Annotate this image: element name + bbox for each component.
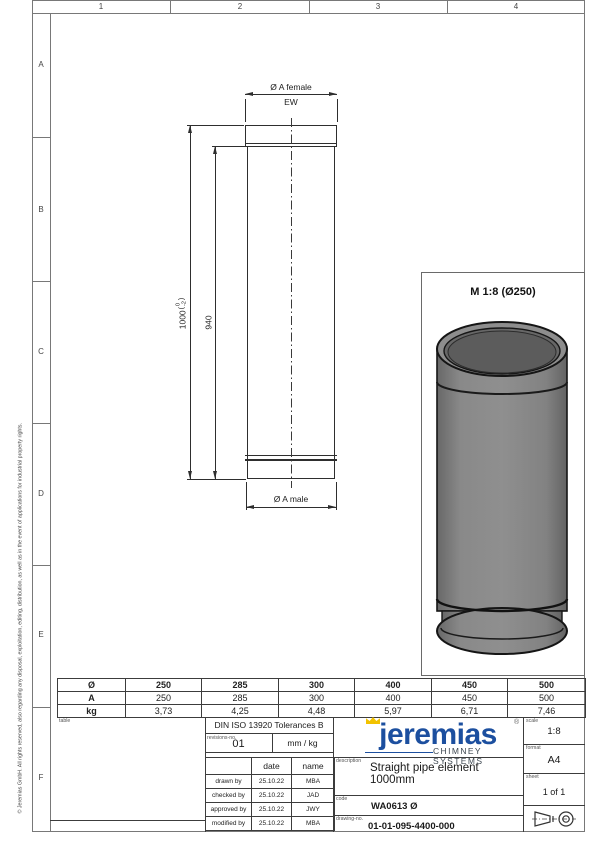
code-value: WA0613 Ø: [371, 801, 521, 812]
sheet-value: 1 of 1: [523, 787, 585, 797]
size-cell: 250: [126, 692, 202, 705]
role-cell: modified by: [206, 817, 252, 831]
dim-length-line: [190, 125, 191, 479]
size-cell: 7,46: [508, 705, 586, 718]
dim-arrow-up: [188, 125, 192, 133]
size-cell: 6,71: [432, 705, 508, 718]
sheet-label: sheet: [526, 775, 539, 780]
description-label: description: [336, 759, 361, 764]
row-divider: [32, 137, 50, 138]
size-table: Ø 250 285 300 400 450 500 A 250 285 300 …: [57, 678, 586, 718]
tol-paren-open: (: [179, 307, 186, 309]
date-header: date: [252, 758, 292, 775]
table-cell-label: table: [59, 719, 70, 724]
size-table-row-a: A 250 285 300 400 450 500: [58, 692, 586, 705]
zone-row-d: D: [32, 489, 50, 498]
code-label: code: [336, 797, 347, 802]
size-table-row-diameter: Ø 250 285 300 400 450 500: [58, 679, 586, 692]
pipe-body-right: [334, 147, 335, 478]
name-cell: MBA: [292, 817, 335, 831]
title-block-divider: [333, 795, 523, 796]
copyright-note: © Jeremias GmbH. All rights reserved, al…: [18, 454, 27, 814]
frame-top: [32, 13, 585, 14]
role-cell: drawn by: [206, 775, 252, 789]
zone-col-2: 2: [230, 2, 250, 11]
dim-female-label: Ø A female: [225, 82, 357, 92]
zone-row-a: A: [32, 60, 50, 69]
dim-arrow-right: [328, 505, 336, 509]
logo-cell: jeremias ® CHIMNEY SYSTEMS: [333, 717, 523, 757]
zone-row-e: E: [32, 630, 50, 639]
dim-arrow-right: [329, 92, 337, 96]
size-cell: 300: [279, 679, 355, 692]
dim-arrow-left: [246, 505, 254, 509]
dim-arrow-down: [213, 471, 217, 479]
col-divider: [309, 0, 310, 13]
scale-label: scale: [526, 719, 538, 724]
signature-row-modified: modified by 25.10.22 MBA: [206, 817, 335, 831]
size-cell: 250: [126, 679, 202, 692]
signature-row-drawn: drawn by 25.10.22 MBA: [206, 775, 335, 789]
dim-length-tolerance: 0 -2: [176, 301, 188, 306]
dim-male-line: [246, 507, 336, 508]
size-cell: 500: [508, 679, 586, 692]
dim-ext-line: [187, 125, 244, 126]
size-label: Ø: [58, 679, 126, 692]
pipe-centerline: [291, 118, 292, 488]
dim-arrow-up: [213, 146, 217, 154]
name-cell: JAD: [292, 789, 335, 803]
date-cell: 25.10.22: [252, 817, 292, 831]
col-divider: [447, 0, 448, 13]
title-block-divider: [523, 805, 585, 806]
dim-length-value: 1000: [177, 310, 187, 329]
iso-view-box: M 1:8 (Ø250): [421, 272, 585, 676]
tolerance-note: DIN ISO 13920 Tolerances B: [205, 717, 333, 734]
first-angle-projection-icon: [531, 808, 577, 830]
dim-female-line: [245, 94, 337, 95]
format-value: A4: [523, 754, 585, 766]
dim-arrow-down: [188, 471, 192, 479]
logo-underline: [365, 752, 433, 754]
title-block: DIN ISO 13920 Tolerances B revisions-no.…: [205, 717, 585, 832]
size-cell: 500: [508, 692, 586, 705]
drawing-sheet: 1 2 3 4 A B C D E F © Jeremias GmbH. All…: [0, 0, 600, 848]
size-cell: 300: [279, 692, 355, 705]
row-divider: [32, 281, 50, 282]
zone-row-c: C: [32, 347, 50, 356]
size-label: A: [58, 692, 126, 705]
signature-header-row: date name: [206, 758, 335, 775]
size-cell: 3,73: [126, 705, 202, 718]
signature-row-checked: checked by 25.10.22 JAD: [206, 789, 335, 803]
scale-value: 1:8: [523, 726, 585, 737]
row-divider: [32, 707, 50, 708]
pipe-3d-render: [422, 273, 584, 675]
drawing-no-value: 01-01-095-4400-000: [368, 821, 528, 832]
signature-empty-header: [206, 758, 252, 775]
revision-number: 01: [205, 734, 272, 753]
drawing-no-label: drawing-no.: [336, 817, 363, 822]
dim-ext-line: [212, 146, 246, 147]
units-cell: mm / kg: [272, 734, 333, 753]
dim-ext-line: [187, 479, 246, 480]
iso-view-label: M 1:8 (Ø250): [422, 286, 584, 298]
date-cell: 25.10.22: [252, 803, 292, 817]
size-cell: 400: [355, 679, 432, 692]
zone-letter-strip-line: [50, 13, 51, 832]
title-block-divider: [333, 757, 523, 758]
bottom-left-divider: [50, 820, 205, 821]
signature-table: date name drawn by 25.10.22 MBA checked …: [205, 757, 335, 831]
format-label: format: [526, 746, 541, 751]
signature-row-approved: approved by 25.10.22 JWY: [206, 803, 335, 817]
size-cell: 285: [202, 679, 279, 692]
size-cell: 4,48: [279, 705, 355, 718]
role-cell: checked by: [206, 789, 252, 803]
zone-col-1: 1: [91, 2, 111, 11]
size-cell: 285: [202, 692, 279, 705]
col-divider: [170, 0, 171, 13]
zone-row-b: B: [32, 205, 50, 214]
size-cell: 450: [432, 692, 508, 705]
dim-inner-line: [215, 146, 216, 479]
dim-ext-line: [337, 99, 338, 122]
zone-col-4: 4: [506, 2, 526, 11]
role-cell: approved by: [206, 803, 252, 817]
tol-paren-close: ): [179, 298, 186, 300]
tol-lower: -2: [182, 301, 188, 306]
row-divider: [32, 565, 50, 566]
name-cell: JWY: [292, 803, 335, 817]
registered-mark: ®: [514, 719, 519, 726]
dim-ext-line: [245, 99, 246, 122]
dim-arrow-left: [245, 92, 253, 96]
size-cell: 5,97: [355, 705, 432, 718]
dim-inner-label: 940: [203, 311, 214, 335]
name-header: name: [292, 758, 335, 775]
row-divider: [32, 423, 50, 424]
name-cell: MBA: [292, 775, 335, 789]
description-value: Straight pipe element 1000mm: [370, 762, 520, 786]
zone-row-f: F: [32, 773, 50, 782]
zone-col-3: 3: [368, 2, 388, 11]
pipe-body-left: [247, 147, 248, 478]
dim-length-label: 1000 ( 0 -2 ): [177, 284, 188, 344]
date-cell: 25.10.22: [252, 775, 292, 789]
size-cell: 4,25: [202, 705, 279, 718]
size-label: kg: [58, 705, 126, 718]
size-table-row-kg: kg 3,73 4,25 4,48 5,97 6,71 7,46: [58, 705, 586, 718]
size-cell: 450: [432, 679, 508, 692]
date-cell: 25.10.22: [252, 789, 292, 803]
dim-male-label: Ø A male: [226, 494, 356, 504]
size-cell: 400: [355, 692, 432, 705]
